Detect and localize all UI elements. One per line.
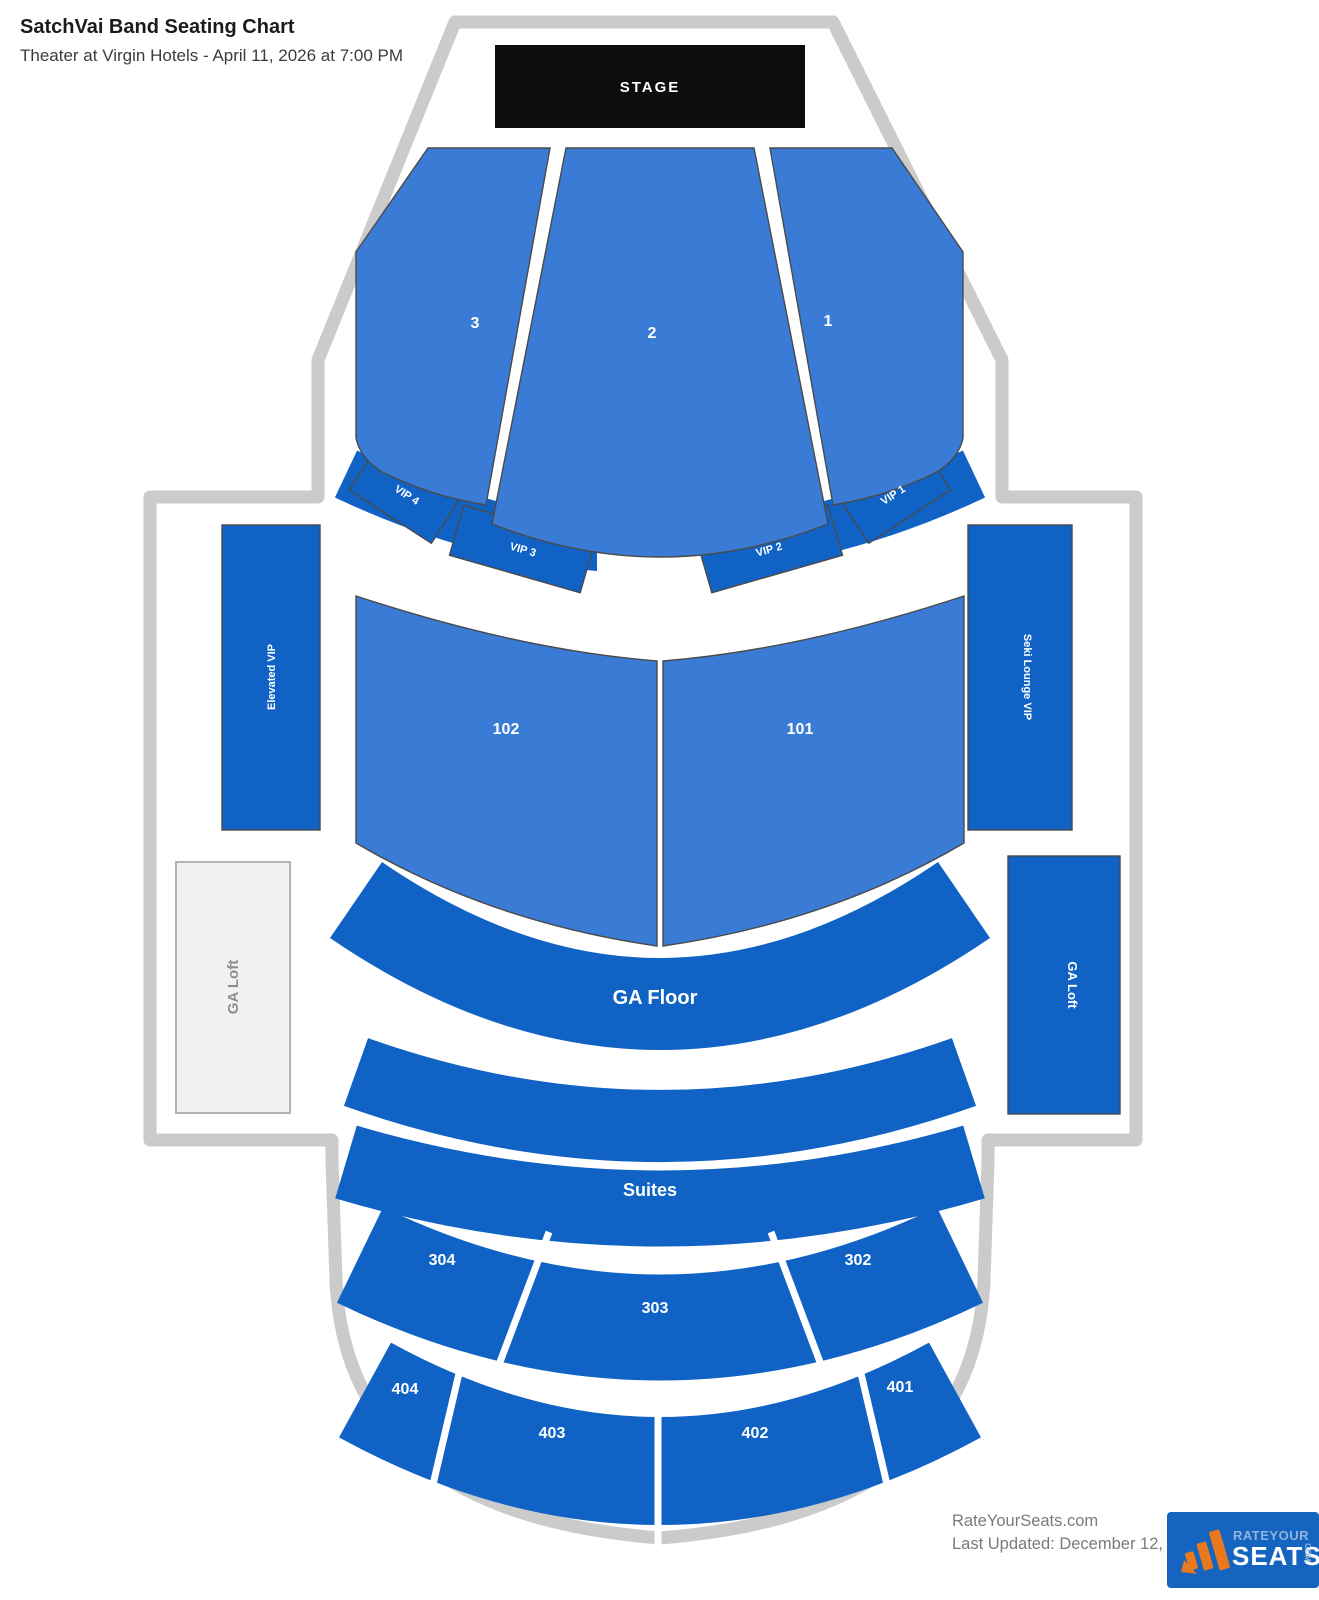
section-303-label: 303	[642, 1300, 669, 1317]
ga-floor-label: GA Floor	[613, 987, 698, 1009]
section-3-label: 3	[471, 315, 480, 332]
section-404-label: 404	[392, 1381, 419, 1398]
section-ga-loft-right[interactable]	[1008, 856, 1120, 1114]
ga-loft-right-label: GA Loft	[1065, 961, 1080, 1009]
section-102-label: 102	[493, 721, 520, 738]
seating-chart-canvas: STAGE 3 2 1 VIP 4 VIP 3 VIP 2 VIP 1 102 …	[0, 0, 1319, 1600]
stage-label: STAGE	[620, 79, 681, 96]
section-402-label: 402	[742, 1425, 769, 1442]
page-title: SatchVai Band Seating Chart	[20, 16, 403, 39]
section-1-label: 1	[824, 313, 833, 330]
rateyourseats-logo: RATEYOUR SEATS COM	[1167, 1512, 1319, 1588]
section-101-label: 101	[787, 721, 814, 738]
section-2-label: 2	[648, 325, 657, 342]
elevated-vip-label: Elevated VIP	[266, 644, 278, 710]
section-401-label: 401	[887, 1379, 914, 1396]
lounge-vip-label: Seki Lounge VIP	[1021, 634, 1033, 720]
suites-label: Suites	[623, 1180, 677, 1200]
section-302-label: 302	[845, 1252, 872, 1269]
logo-bars-icon	[1175, 1524, 1231, 1578]
section-lounge-vip[interactable]	[968, 525, 1072, 830]
ga-loft-left-label: GA Loft	[225, 960, 242, 1014]
section-304-label: 304	[429, 1252, 456, 1269]
section-403-label: 403	[539, 1425, 566, 1442]
page-header: SatchVai Band Seating Chart Theater at V…	[20, 16, 403, 66]
page-subtitle: Theater at Virgin Hotels - April 11, 202…	[20, 46, 403, 66]
logo-com-text: COM	[1303, 1543, 1312, 1562]
